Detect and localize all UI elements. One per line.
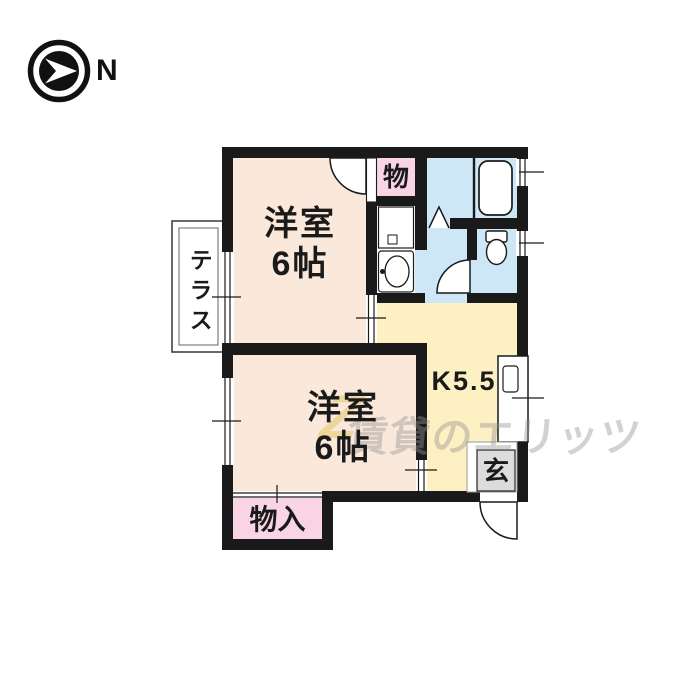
floorplan-drawing <box>0 0 700 700</box>
wall-bottom <box>322 491 480 502</box>
door-leaf-room1 <box>367 158 377 202</box>
room2-label: 洋室 6帖 <box>278 388 408 468</box>
room1-name: 洋室 <box>235 204 365 244</box>
room1-size: 6帖 <box>235 244 365 284</box>
wall-toilet-left <box>467 229 477 260</box>
entrance-label: 玄 <box>478 456 514 487</box>
terrace-label: テラス <box>185 237 212 349</box>
wall-storage-right <box>322 491 333 550</box>
window-bath <box>516 159 544 186</box>
compass-icon <box>31 43 88 100</box>
washer-pan-icon <box>379 207 414 248</box>
wall-storage-side <box>415 158 427 250</box>
floor-kitchen-upper <box>377 303 517 344</box>
floorplan-canvas: Z 賃貸のエリッツ N 洋室 6帖 洋室 6帖 K5.5 玄 物 物入 テラス <box>0 0 700 700</box>
room1-label: 洋室 6帖 <box>235 204 365 284</box>
wall-storage-bottom <box>222 539 333 550</box>
wall-between-rooms <box>233 343 427 355</box>
wall-toilet-bottom <box>467 293 528 303</box>
storage-top-label: 物 <box>377 162 415 193</box>
storage-bottom-label: 物入 <box>233 503 322 536</box>
wall-left <box>222 147 233 550</box>
kitchen-label: K5.5 <box>424 366 504 398</box>
wall-top <box>222 147 528 158</box>
north-label: N <box>96 54 118 88</box>
vanity-sink-icon <box>379 251 414 292</box>
bathtub-icon <box>479 161 512 215</box>
room2-name: 洋室 <box>278 388 408 428</box>
door-arc-entrance <box>480 502 517 539</box>
wall-bath-bottom <box>450 218 528 229</box>
toilet-icon <box>486 231 507 265</box>
window-toilet <box>516 231 544 256</box>
room2-size: 6帖 <box>278 428 408 468</box>
